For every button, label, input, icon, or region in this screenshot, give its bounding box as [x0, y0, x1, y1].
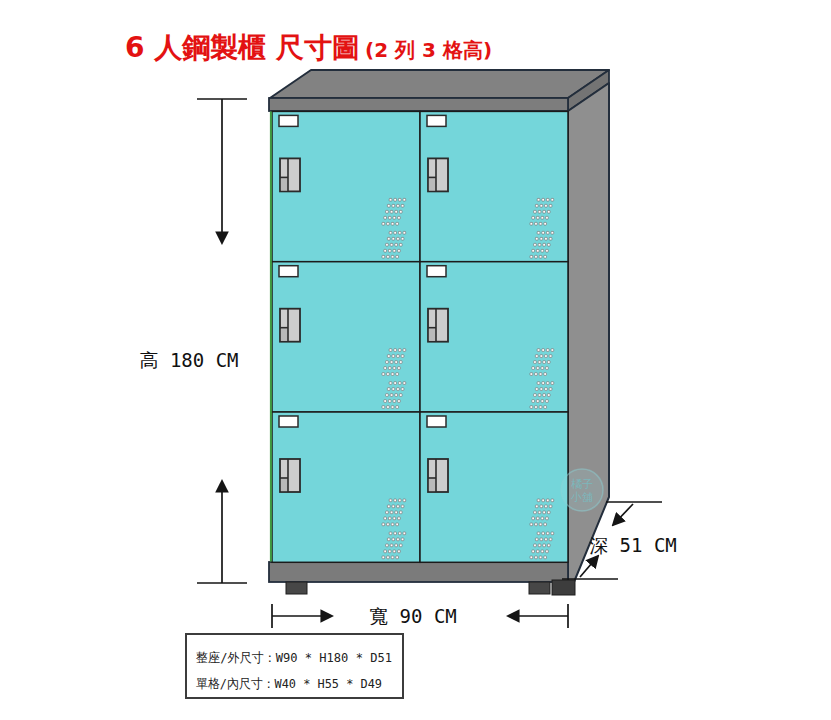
cabinet-foot-left	[286, 582, 307, 594]
width-dimension: 寬 90 CM	[272, 604, 568, 628]
page-title-main: 6 人鋼製櫃 尺寸圖	[125, 31, 360, 64]
watermark-line2: 小舖	[570, 491, 593, 504]
cabinet-illustration: 橘子 小舖	[269, 70, 609, 595]
watermark-line1: 橘子	[571, 478, 593, 491]
dimension-arrow	[613, 504, 633, 525]
cabinet-foot-right	[529, 582, 550, 594]
locker-door	[272, 412, 420, 562]
locker-dimension-diagram-page: 6 人鋼製櫃 尺寸圖 (2 列 3 格高) 橘子 小舖 高 180 CM	[0, 0, 831, 720]
page-title-sub: (2 列 3 格高)	[365, 38, 492, 62]
locker-door	[272, 111, 420, 261]
cabinet-base	[269, 562, 568, 582]
locker-door	[272, 262, 420, 412]
cabinet-top-front-band	[269, 98, 568, 111]
page-title: 6 人鋼製櫃 尺寸圖 (2 列 3 格高)	[125, 31, 492, 64]
depth-label: 深 51 CM	[589, 534, 677, 556]
height-dimension: 高 180 CM	[139, 99, 247, 583]
locker-door	[420, 412, 568, 562]
locker-diagram: 6 人鋼製櫃 尺寸圖 (2 列 3 格高) 橘子 小舖 高 180 CM	[0, 0, 831, 720]
spec-inner-dimensions: 單格/內尺寸：W40 * H55 * D49	[196, 676, 382, 691]
spec-outer-dimensions: 整座/外尺寸：W90 * H180 * D51	[196, 650, 392, 665]
cabinet-foot-back-right	[552, 580, 575, 595]
width-label: 寬 90 CM	[369, 605, 457, 627]
spec-box: 整座/外尺寸：W90 * H180 * D51 單格/內尺寸：W40 * H55…	[186, 634, 403, 698]
watermark: 橘子 小舖	[561, 469, 603, 511]
locker-door	[420, 111, 568, 261]
height-label: 高 180 CM	[139, 349, 238, 371]
locker-door	[420, 262, 568, 412]
cabinet-top-surface	[270, 70, 609, 98]
